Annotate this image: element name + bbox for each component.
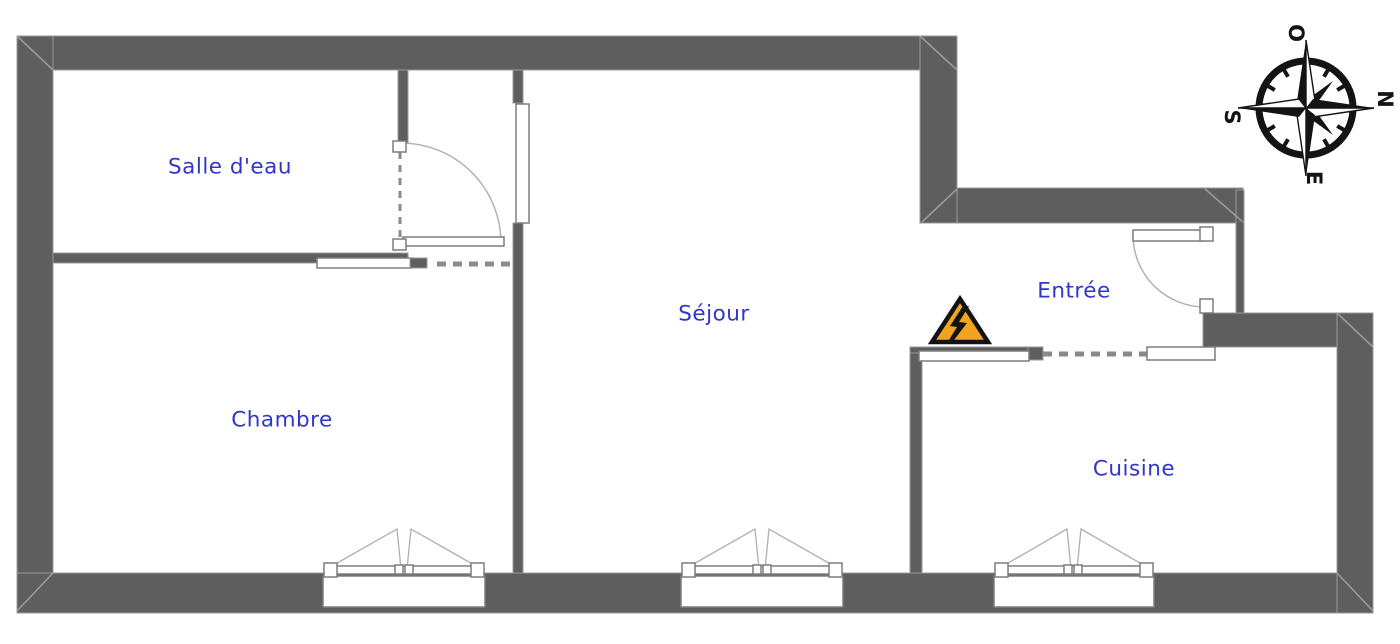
cuisine-window — [994, 529, 1154, 607]
wall-entree-east-thin — [1236, 190, 1244, 313]
casement-right — [407, 529, 476, 569]
room-label-entree: Entrée — [1037, 279, 1110, 304]
window-hinge-right — [1140, 563, 1153, 577]
room-label-cuisine: Cuisine — [1093, 457, 1175, 482]
window-hinge-left — [324, 563, 337, 577]
compass-letter-west: O — [1284, 24, 1308, 42]
door-swing-arc — [401, 143, 501, 243]
warning-triangle — [932, 299, 988, 342]
sejour-window — [681, 529, 843, 607]
casement-left — [1003, 529, 1071, 569]
interior-walls — [53, 70, 1043, 573]
sliding-panel — [317, 258, 412, 268]
door-leaf — [403, 237, 504, 246]
compass-long-points — [1238, 40, 1374, 176]
door-hinge-bottom — [393, 239, 406, 250]
wall-north — [17, 36, 957, 70]
room-label-chambre: Chambre — [231, 408, 333, 433]
window-sill — [323, 576, 485, 607]
window-center-left — [1064, 565, 1072, 574]
chambre-sliding-door — [317, 258, 513, 268]
entree-entrance-door — [1133, 227, 1213, 313]
window-frame — [336, 566, 472, 574]
room-label-sejour: Séjour — [678, 302, 749, 327]
floor-plan-image: O N E S Salle d'eau Chambre Séjour Entré… — [0, 0, 1400, 644]
window-hinge-right — [471, 563, 484, 577]
room-label-salle-deau: Salle d'eau — [168, 155, 292, 180]
wall-chambre-sejour-lower — [513, 223, 523, 573]
window-hinge-left — [682, 563, 695, 577]
window-center-left — [395, 565, 403, 574]
casement-left — [332, 529, 401, 569]
chambre-window — [323, 529, 485, 607]
salle-deau-door — [393, 141, 504, 250]
sliding-panel — [919, 351, 1029, 361]
fixed-panel — [1147, 347, 1215, 360]
wall-cuisine-west — [910, 347, 922, 573]
window-sill — [994, 576, 1154, 607]
window-center-left — [753, 565, 761, 574]
door-leaf — [1133, 230, 1203, 241]
compass-letter-south: S — [1220, 109, 1244, 124]
wall-salle-deau-partition — [398, 70, 408, 143]
casement-left — [690, 529, 759, 569]
compass-rose-icon: O N E S — [1220, 24, 1397, 185]
door-hinge-top — [1200, 227, 1213, 241]
window-center-right — [405, 565, 413, 574]
wall-entree-north — [957, 188, 1243, 223]
compass-letter-north: N — [1373, 90, 1397, 108]
compass-letter-east: E — [1302, 171, 1326, 185]
wall-west — [17, 36, 53, 613]
window-frame — [694, 566, 830, 574]
window-center-right — [1074, 565, 1082, 574]
casement-right — [765, 529, 834, 569]
window-hinge-left — [995, 563, 1008, 577]
door-hinge-bottom — [1200, 299, 1213, 313]
wall-chambre-sejour-upper — [513, 70, 523, 103]
window-hinge-right — [829, 563, 842, 577]
interior-window — [516, 104, 529, 223]
window-center-right — [763, 565, 771, 574]
wall-stub-cuisine-door — [1028, 347, 1043, 360]
wall-east — [1337, 313, 1373, 613]
electrical-hazard-icon — [932, 299, 988, 342]
door-swing-arc — [1133, 235, 1205, 307]
casement-right — [1077, 529, 1145, 569]
door-hinge-top — [393, 141, 406, 152]
window-sill — [681, 576, 843, 607]
sliding-panel-stop — [410, 258, 427, 268]
